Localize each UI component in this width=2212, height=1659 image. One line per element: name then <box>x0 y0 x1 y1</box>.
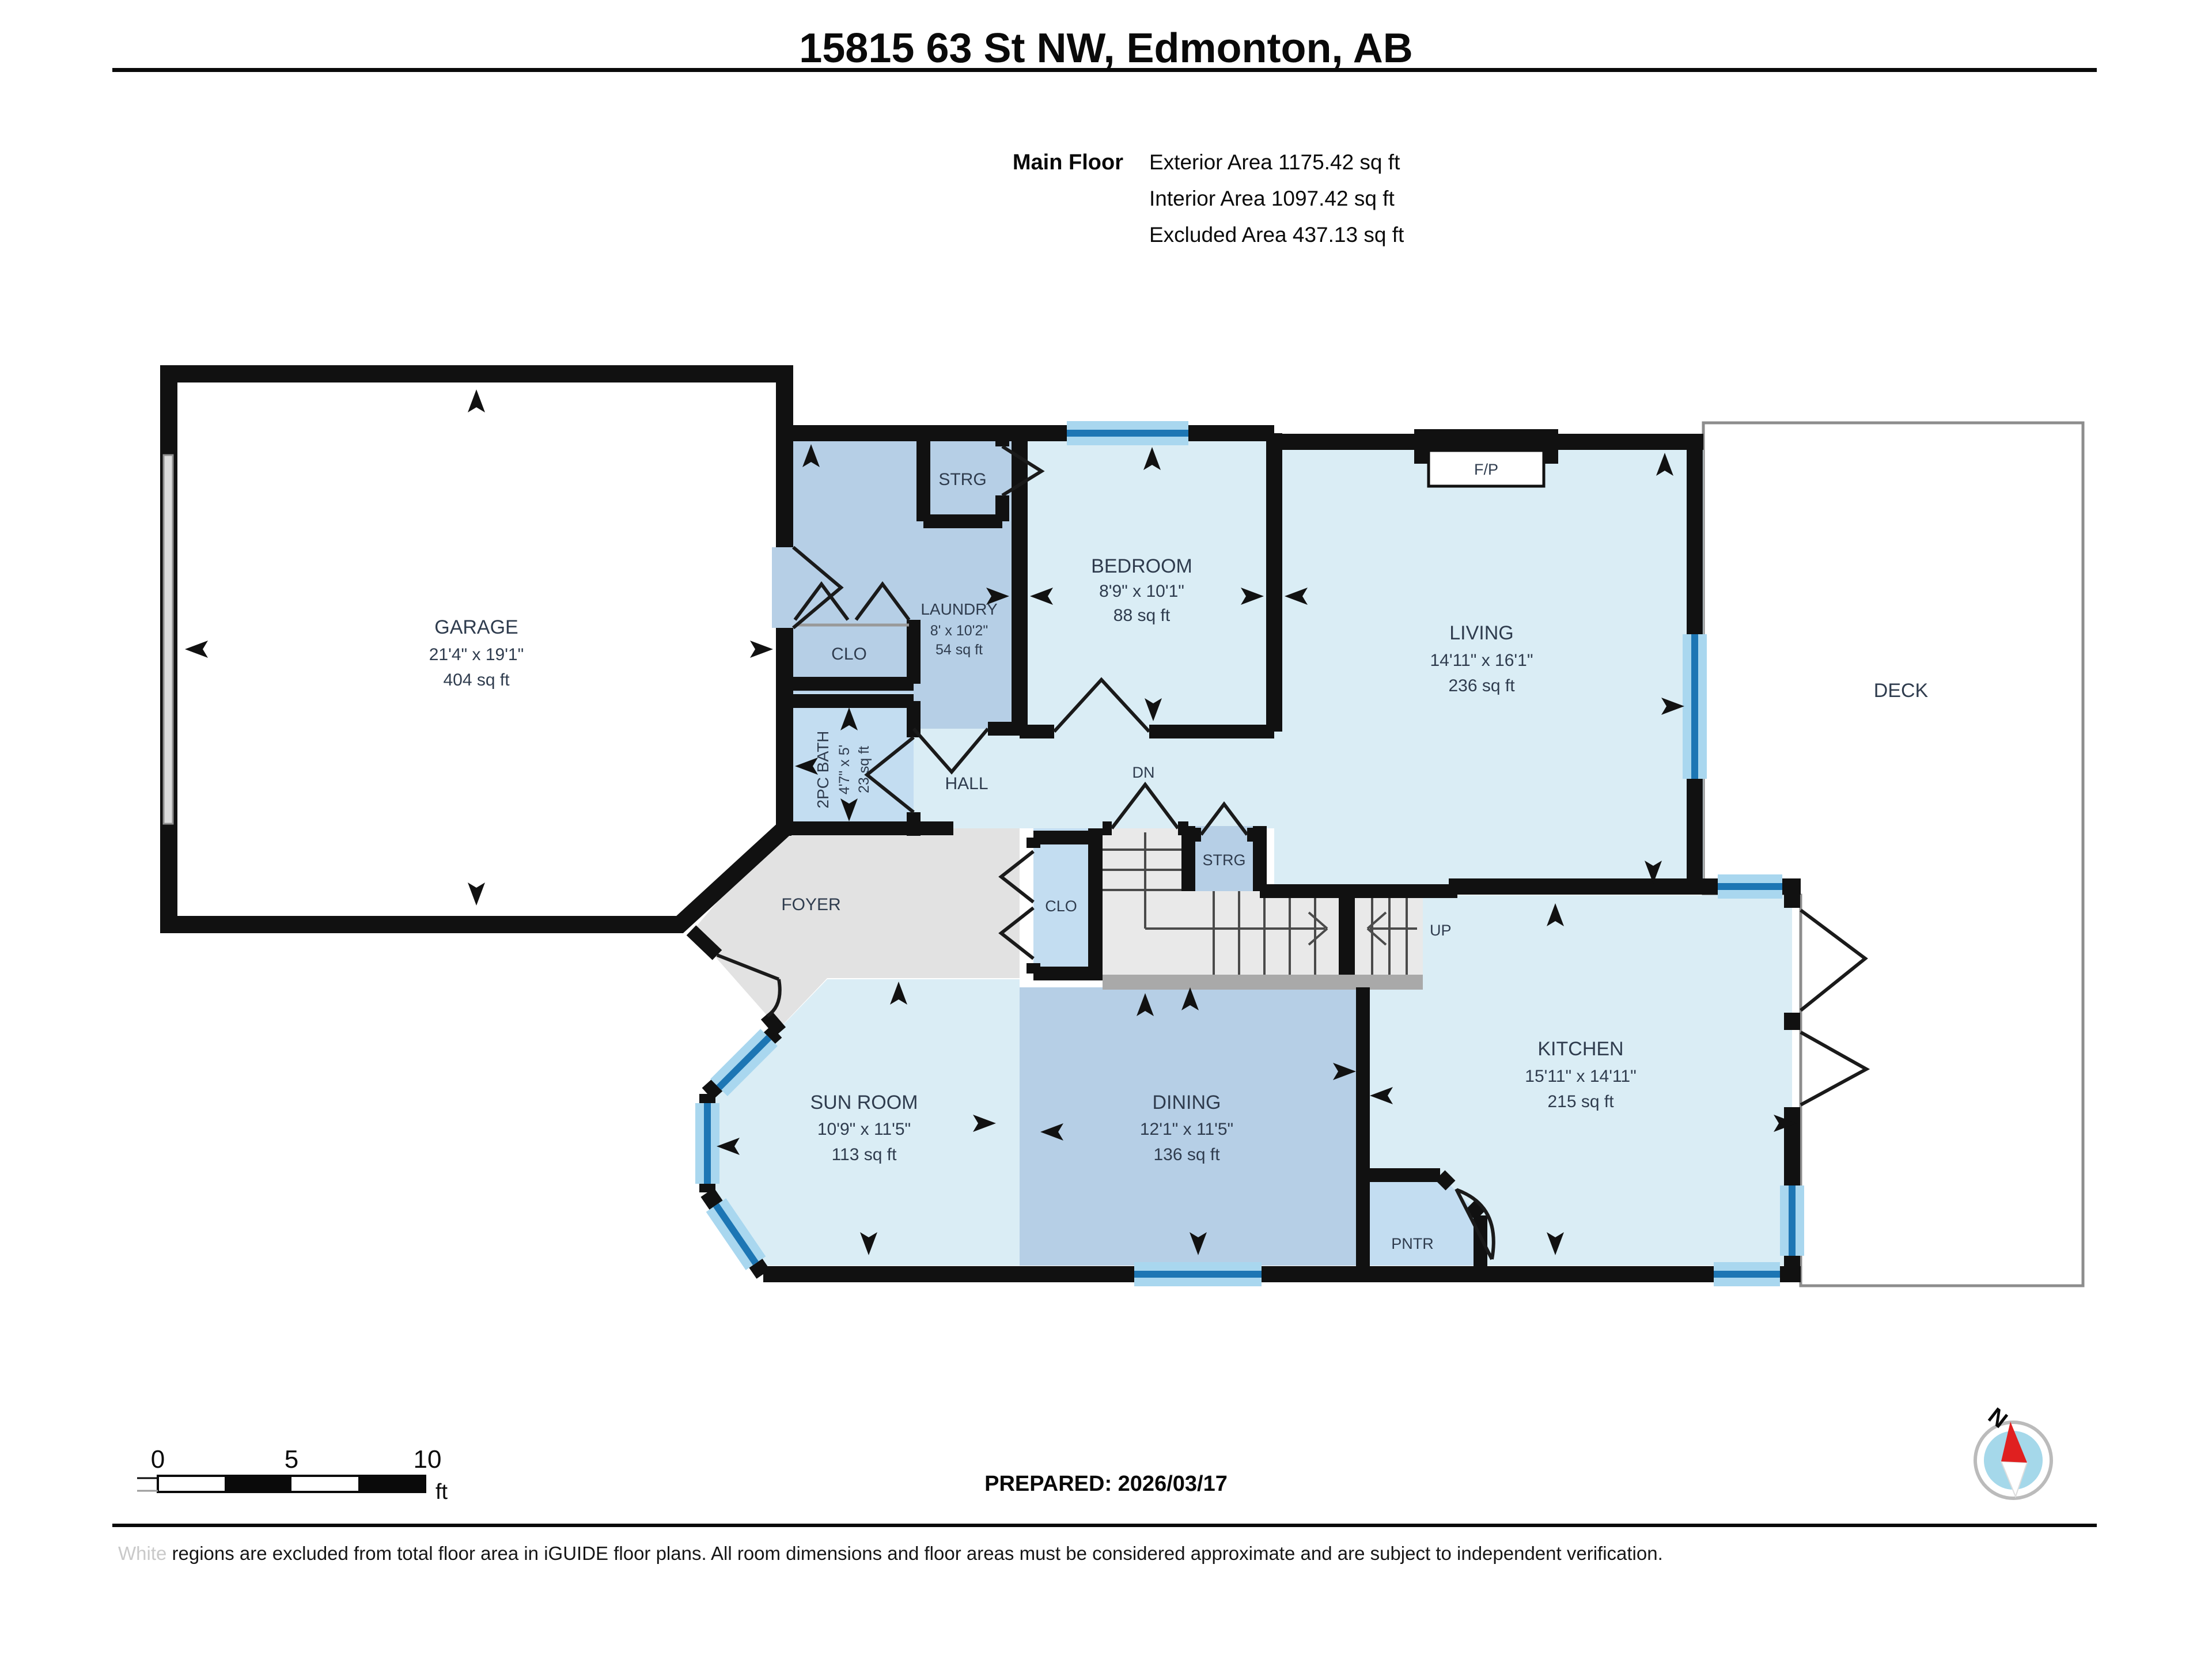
garage-dims: 21'4" x 19'1" <box>429 645 524 664</box>
bedroom-area: 88 sq ft <box>1113 606 1171 625</box>
storage-top-label: STRG <box>938 470 986 489</box>
bedroom-dims: 8'9" x 10'1" <box>1099 582 1184 601</box>
stat-exterior: Exterior Area 1175.42 sq ft <box>1149 150 1400 174</box>
sunroom-label: SUN ROOM <box>810 1092 918 1113</box>
dining-label: DINING <box>1153 1092 1221 1113</box>
laundry-area: 54 sq ft <box>935 642 983 658</box>
kitchen-area: 215 sq ft <box>1547 1092 1614 1111</box>
storage-stairs-label: STRG <box>1202 851 1245 869</box>
bedroom-label: BEDROOM <box>1091 555 1192 577</box>
scale-bar: 0 5 10 ft <box>137 1445 448 1504</box>
header-rule <box>112 68 2097 72</box>
laundry-label: LAUNDRY <box>921 600 998 618</box>
dining-dims: 12'1" x 11'5" <box>1140 1120 1233 1139</box>
scale-unit: ft <box>435 1480 448 1504</box>
prepared-date: PREPARED: 2026/03/17 <box>984 1472 1228 1496</box>
closet-stairs-label: CLO <box>1045 897 1077 915</box>
sunroom-area: 113 sq ft <box>832 1145 897 1164</box>
deck-label: DECK <box>1874 680 1929 702</box>
laundry-dims: 8' x 10'2" <box>930 623 988 639</box>
footer-rule <box>112 1524 2097 1527</box>
compass: N <box>1975 1403 2051 1498</box>
garage-area: 404 sq ft <box>443 671 510 690</box>
disclaimer: White regions are excluded from total fl… <box>118 1543 1663 1564</box>
sunroom-dims: 10'9" x 11'5" <box>817 1120 911 1139</box>
floorplan-canvas: 15815 63 St NW, Edmonton, AB Main Floor … <box>0 0 2212 1659</box>
bath-label: 2PC BATH <box>814 731 832 809</box>
stat-excluded: Excluded Area 437.13 sq ft <box>1149 223 1404 247</box>
disclaimer-rest: regions are excluded from total floor ar… <box>166 1543 1662 1564</box>
header: 15815 63 St NW, Edmonton, AB Main Floor … <box>112 25 2097 247</box>
footer: 0 5 10 ft PREPARED: 2026/03/17 N White r… <box>112 1403 2097 1564</box>
living-area: 236 sq ft <box>1448 676 1515 695</box>
kitchen-label: KITCHEN <box>1537 1038 1623 1060</box>
stairs-down-label: DN <box>1132 764 1155 781</box>
living-label: LIVING <box>1449 622 1513 644</box>
scale-tick-5: 5 <box>285 1445 298 1474</box>
scale-tick-0: 0 <box>151 1445 165 1474</box>
closet-garage-label: CLO <box>831 645 867 664</box>
stairs-up-label: UP <box>1430 922 1452 939</box>
disclaimer-highlight: White <box>118 1543 166 1564</box>
scale-tick-10: 10 <box>414 1445 442 1474</box>
garage-door <box>164 455 173 824</box>
dining-area: 136 sq ft <box>1153 1145 1220 1164</box>
floorplan-page: 15815 63 St NW, Edmonton, AB Main Floor … <box>0 0 2212 1659</box>
bath-dims: 4'7" x 5' <box>836 745 853 795</box>
pantry-label: PNTR <box>1391 1235 1434 1252</box>
floor-label: Main Floor <box>1013 150 1123 175</box>
page-title: 15815 63 St NW, Edmonton, AB <box>799 25 1413 71</box>
hall-label: HALL <box>945 774 988 793</box>
living-dims: 14'11" x 16'1" <box>1430 651 1533 670</box>
fireplace-label: F/P <box>1474 461 1498 478</box>
foyer-label: FOYER <box>781 895 840 914</box>
bath-area: 23 sq ft <box>856 746 872 793</box>
stat-interior: Interior Area 1097.42 sq ft <box>1149 187 1395 210</box>
kitchen-dims: 15'11" x 14'11" <box>1525 1067 1636 1086</box>
garage-label: GARAGE <box>434 616 518 638</box>
